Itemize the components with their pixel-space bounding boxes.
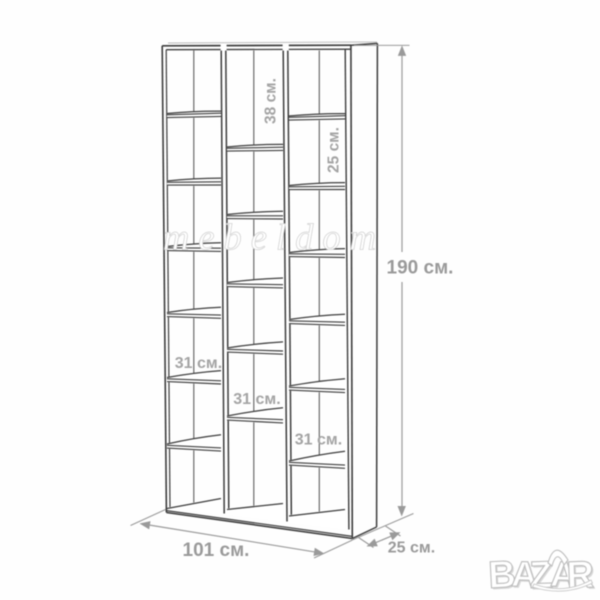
svg-text:190 см.: 190 см.	[387, 258, 454, 279]
svg-text:31 см.: 31 см.	[175, 355, 222, 372]
svg-text:25 см.: 25 см.	[326, 127, 343, 173]
svg-text:25 см.: 25 см.	[388, 540, 435, 557]
svg-text:38 см.: 38 см.	[263, 78, 280, 124]
svg-text:mebeldom: mebeldom	[163, 217, 385, 258]
svg-text:31 см.: 31 см.	[295, 432, 342, 449]
svg-text:31 см.: 31 см.	[233, 391, 280, 408]
svg-text:101 см.: 101 см.	[183, 540, 250, 561]
